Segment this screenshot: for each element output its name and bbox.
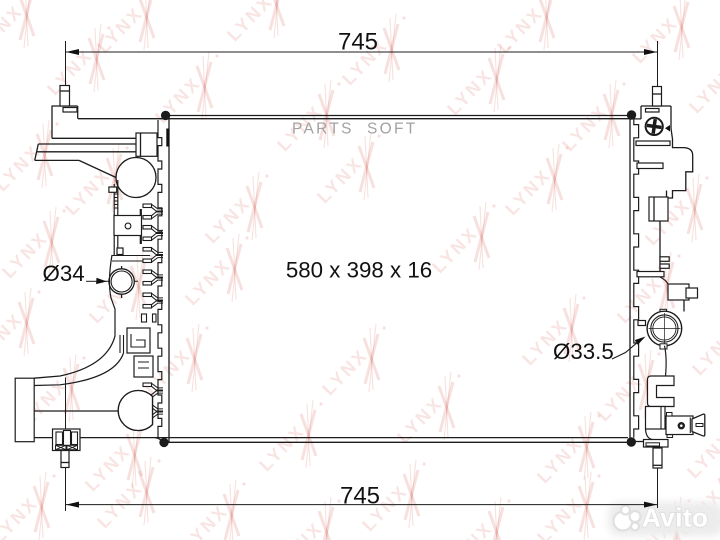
svg-text:745: 745 <box>340 482 380 509</box>
svg-text:580 x 398 x 16: 580 x 398 x 16 <box>286 258 432 283</box>
svg-text:Avito: Avito <box>642 503 709 533</box>
svg-text:Ø34: Ø34 <box>43 261 85 286</box>
svg-text:PARTS SOFT: PARTS SOFT <box>292 121 418 138</box>
svg-text:Ø33.5: Ø33.5 <box>553 339 614 364</box>
svg-text:745: 745 <box>338 29 378 56</box>
